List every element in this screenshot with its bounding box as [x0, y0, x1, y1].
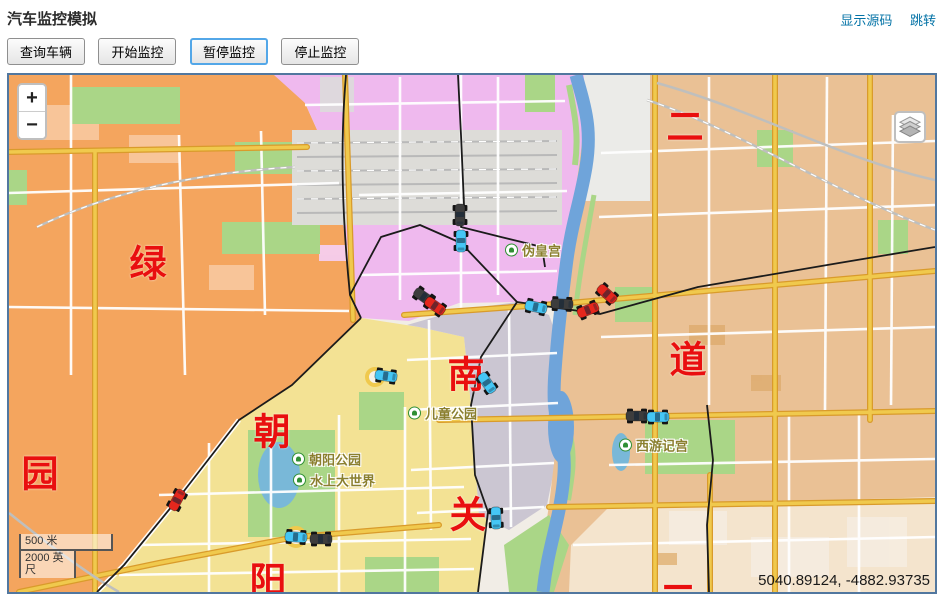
railway-yard [292, 130, 562, 225]
pause-monitor-button[interactable]: 暂停监控 [190, 38, 268, 65]
map-tiles [9, 75, 935, 592]
query-vehicles-button[interactable]: 查询车辆 [7, 38, 85, 65]
header: 汽车监控模拟 显示源码 跳转 [0, 0, 944, 29]
header-links: 显示源码 跳转 [826, 10, 936, 29]
zoom-in-button[interactable]: + [19, 85, 45, 112]
stop-monitor-button[interactable]: 停止监控 [281, 38, 359, 65]
zoom-out-button[interactable]: − [19, 112, 45, 138]
scale-imperial: 2000 英尺 [19, 549, 76, 578]
zoom-control: + − [17, 83, 47, 140]
scale-control: 500 米 2000 英尺 [19, 534, 113, 578]
layers-icon [899, 116, 921, 138]
show-source-link[interactable]: 显示源码 [840, 13, 892, 28]
mouse-coordinates: 5040.89124, -4882.93735 [758, 572, 930, 589]
jump-link[interactable]: 跳转 [910, 13, 936, 28]
layers-control-button[interactable] [894, 111, 926, 143]
start-monitor-button[interactable]: 开始监控 [98, 38, 176, 65]
page: 汽车监控模拟 显示源码 跳转 查询车辆 开始监控 暂停监控 停止监控 [0, 0, 944, 603]
page-title: 汽车监控模拟 [7, 8, 97, 29]
toolbar: 查询车辆 开始监控 暂停监控 停止监控 [0, 29, 944, 73]
map[interactable]: 二绿道南朝园关阳二 伪皇宫儿童公园朝阳公园水上大世界西游记宫 + − 500 米… [7, 73, 937, 594]
